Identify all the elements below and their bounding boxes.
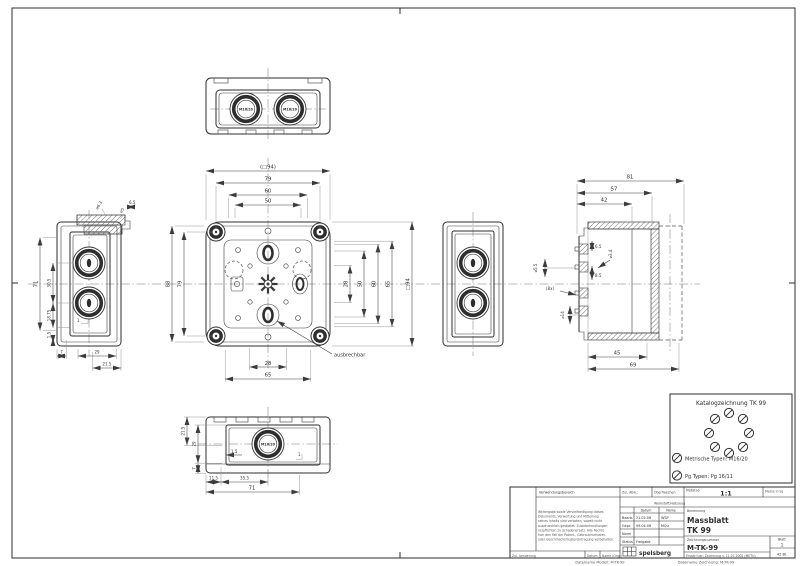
name-header: Name: [666, 509, 675, 513]
svg-text:Weitergabe sowie Vervielfaelti: Weitergabe sowie Vervielfaeltigung diese…: [538, 510, 604, 514]
drawing-sheet: M16/20 M16/20: [0, 0, 800, 566]
knockout-label: M16/20: [283, 107, 298, 111]
dim-label: 42: [601, 198, 608, 204]
drawing-canvas: M16/20 M16/20: [0, 0, 800, 566]
main-view: (□94) 79 60 50 88 79 28 50 60: [166, 165, 415, 383]
svg-text:oder Geschmacksmustereintragun: oder Geschmacksmustereintragung vorbehal…: [538, 538, 614, 542]
dim-label: 81: [627, 175, 634, 181]
zul-abw-label: Zul. Abw.:: [622, 491, 638, 495]
part-title: Massblatt: [687, 516, 729, 525]
dim-label: 28: [344, 280, 350, 287]
change-label: Zul. Aenderung: [512, 554, 536, 558]
zeichnungsnummer-label: Zeichnungsnummer: [687, 538, 720, 542]
dim-label: 21.5: [103, 362, 112, 367]
gland-slot: [471, 259, 475, 267]
benennung-label: Benennung: [687, 509, 705, 513]
company-logo: spelsberg: [623, 547, 671, 557]
dim-label: 88: [166, 280, 172, 287]
model-filename: Dateiname Modell: M-TK-99: [575, 561, 625, 565]
metric-types-label: Metrische Typen: M16/20: [685, 457, 748, 463]
svg-text:fuer den Fall der Patent-, Geb: fuer den Fall der Patent-, Gebrauchsmust…: [538, 533, 606, 537]
bearb-date: 21.02.08: [636, 516, 651, 520]
dim-label: 57: [611, 187, 618, 193]
dim-label: 1.5: [47, 331, 52, 338]
dim-label: 1: [298, 452, 301, 457]
dim-label: 1: [77, 318, 80, 323]
footer: Dateiname Modell: M-TK-99 Dateiname Zeic…: [575, 561, 735, 565]
dim-label: 60: [265, 189, 272, 195]
dim-label: 50: [358, 280, 364, 287]
dim-label: 79: [265, 177, 272, 183]
masse-label: Masse in kg: [765, 490, 783, 494]
dim-label: ⌀14: [560, 311, 565, 319]
dim-label: ⌀3.4: [608, 249, 613, 258]
dim-label: 6.5: [595, 244, 602, 249]
catalog-title: Katalogzeichnung TK 99: [696, 401, 766, 407]
dim-label: 29: [192, 441, 197, 447]
dim-label: ⌀5: [118, 206, 125, 213]
dim-label: ⌀6.3: [94, 200, 103, 210]
bearb-name: WSP: [661, 516, 669, 520]
change-datum-label: Datum: [587, 554, 597, 558]
pg-types-label: Pg Typen: Pg 16/11: [685, 474, 733, 480]
dim-label: ⌀5.5: [533, 263, 538, 272]
metric-gland-icon: [672, 453, 681, 462]
section-view: 81 57 42 45 69 ⌀5.5 6.5 ⌀3.4 8.5 (8x) ⌀1…: [533, 175, 684, 373]
logo-text: spelsberg: [639, 551, 671, 557]
dim-label: 45: [614, 351, 621, 357]
dim-label: 65: [386, 281, 392, 288]
dim-label: 18.75: [47, 309, 52, 321]
knockout-label: M16/20: [239, 107, 254, 111]
dim-label: 1.5: [231, 449, 238, 454]
werkstoff-label: Werkstoff,Halbzeug: [654, 502, 685, 506]
svg-text:ausdruecklich gestattet. Zuwid: ausdruecklich gestattet. Zuwiderhandlung…: [538, 524, 608, 528]
gepr-label: Gepr.: [622, 524, 631, 528]
bottom-view-dimensions: 21.5 29 7 1.5 1 11.5 35.5 71: [181, 417, 303, 495]
status-label: Status: [622, 540, 633, 544]
bottom-view: M16/20 21.5 29 7 1.5 1 11.5 35.5 71: [181, 417, 331, 495]
dim-label: (8x): [546, 286, 554, 291]
legal-notice: Weitergabe sowie Vervielfaeltigung diese…: [538, 510, 614, 542]
main-view-dimensions: (□94) 79 60 50 88 79 28 50 60: [166, 165, 415, 383]
bearb-label: Bearb.: [622, 516, 633, 520]
part-type: TK 99: [687, 526, 711, 535]
drawing-filename: Dateiname Zeichnung: M-TK-99: [678, 561, 735, 565]
knockout-label: M16/20: [261, 442, 276, 446]
dim-label: 30.5: [47, 278, 52, 287]
change-name-label: Name (Orig.): [602, 554, 622, 558]
blatt-value: 1: [781, 543, 784, 548]
title-block: Verwendungsbereich Zul. Abw.: Oberflaech…: [510, 487, 795, 558]
verwendungsbereich-label: Verwendungsbereich: [539, 491, 575, 495]
gland-ring-diagram: [704, 408, 753, 457]
dim-label: 7: [192, 467, 197, 470]
svg-text:Dokuments, Verwertung und Mitt: Dokuments, Verwertung und Mitteilung: [538, 515, 599, 519]
massstab-label: Maßstab: [686, 489, 700, 493]
svg-text:seines Inhalts sind verboten,: seines Inhalts sind verboten, soweit nic…: [538, 519, 603, 523]
svg-text:verpflichten zu Schadenersatz.: verpflichten zu Schadenersatz. Alle Rech…: [538, 528, 604, 532]
ersatz-text: Ersatz fuer: Zeichnung v. 11.07.2002 (ME…: [686, 554, 756, 558]
dim-label: 8.5: [595, 273, 602, 278]
dim-label: 7: [60, 350, 63, 355]
gland-slot: [87, 259, 91, 267]
lid-hatch: [77, 215, 125, 225]
gland-slot: [471, 299, 475, 307]
dim-label: 35.5: [240, 476, 249, 481]
norm-label: Norm: [622, 532, 632, 536]
gland-slot: [87, 299, 91, 307]
dim-label: □94: [406, 278, 412, 290]
dim-label: 69: [630, 363, 637, 369]
oberflaechen-label: Oberflaechen: [654, 491, 675, 495]
dim-label: 71: [249, 486, 256, 492]
catalog-box: Katalogzeichnung TK 99 Metrische Typen: …: [670, 394, 792, 483]
dim-label: 11.5: [209, 476, 218, 481]
scale-value: 1:1: [720, 490, 732, 498]
drawing-number: M-TK-99: [687, 544, 718, 552]
blatt-total: 42 Bl.: [777, 553, 787, 557]
center-gear-boss: [259, 275, 278, 294]
section-view-dimensions: 81 57 42 45 69 ⌀5.5 6.5 ⌀3.4 8.5 (8x) ⌀1…: [533, 175, 684, 373]
dim-label: 60: [372, 280, 378, 287]
knockout-note: ausbrechbar: [334, 353, 366, 359]
pg-gland-icon: [672, 471, 681, 480]
dim-label: 50: [265, 199, 272, 205]
datum-header: Datum: [641, 509, 652, 513]
dim-label: (□94): [260, 165, 276, 171]
blatt-label: Blatt: [778, 538, 786, 542]
dim-label: 28: [265, 361, 272, 367]
corner-screw-icon: [311, 327, 329, 345]
left-view: 71 30.5 18.75 1.5 1 7 29 21.5 ⌀6.3 ⌀5 6.…: [34, 200, 136, 371]
status-value: Freigabe: [636, 540, 651, 544]
dim-label: 29: [94, 350, 100, 355]
dim-label: 79: [178, 281, 184, 288]
lid-hatch: [84, 225, 122, 234]
gepr-name: MQu: [661, 524, 669, 528]
approval-table: Datum Name Bearb. 21.02.08 WSP Gepr. 09.…: [622, 509, 676, 545]
dim-label: 71: [34, 281, 40, 288]
dim-label: 6.5: [129, 200, 136, 205]
dim-label: 65: [265, 373, 272, 379]
gepr-date: 09.04.08: [636, 524, 651, 528]
dim-label: 21.5: [181, 426, 186, 435]
